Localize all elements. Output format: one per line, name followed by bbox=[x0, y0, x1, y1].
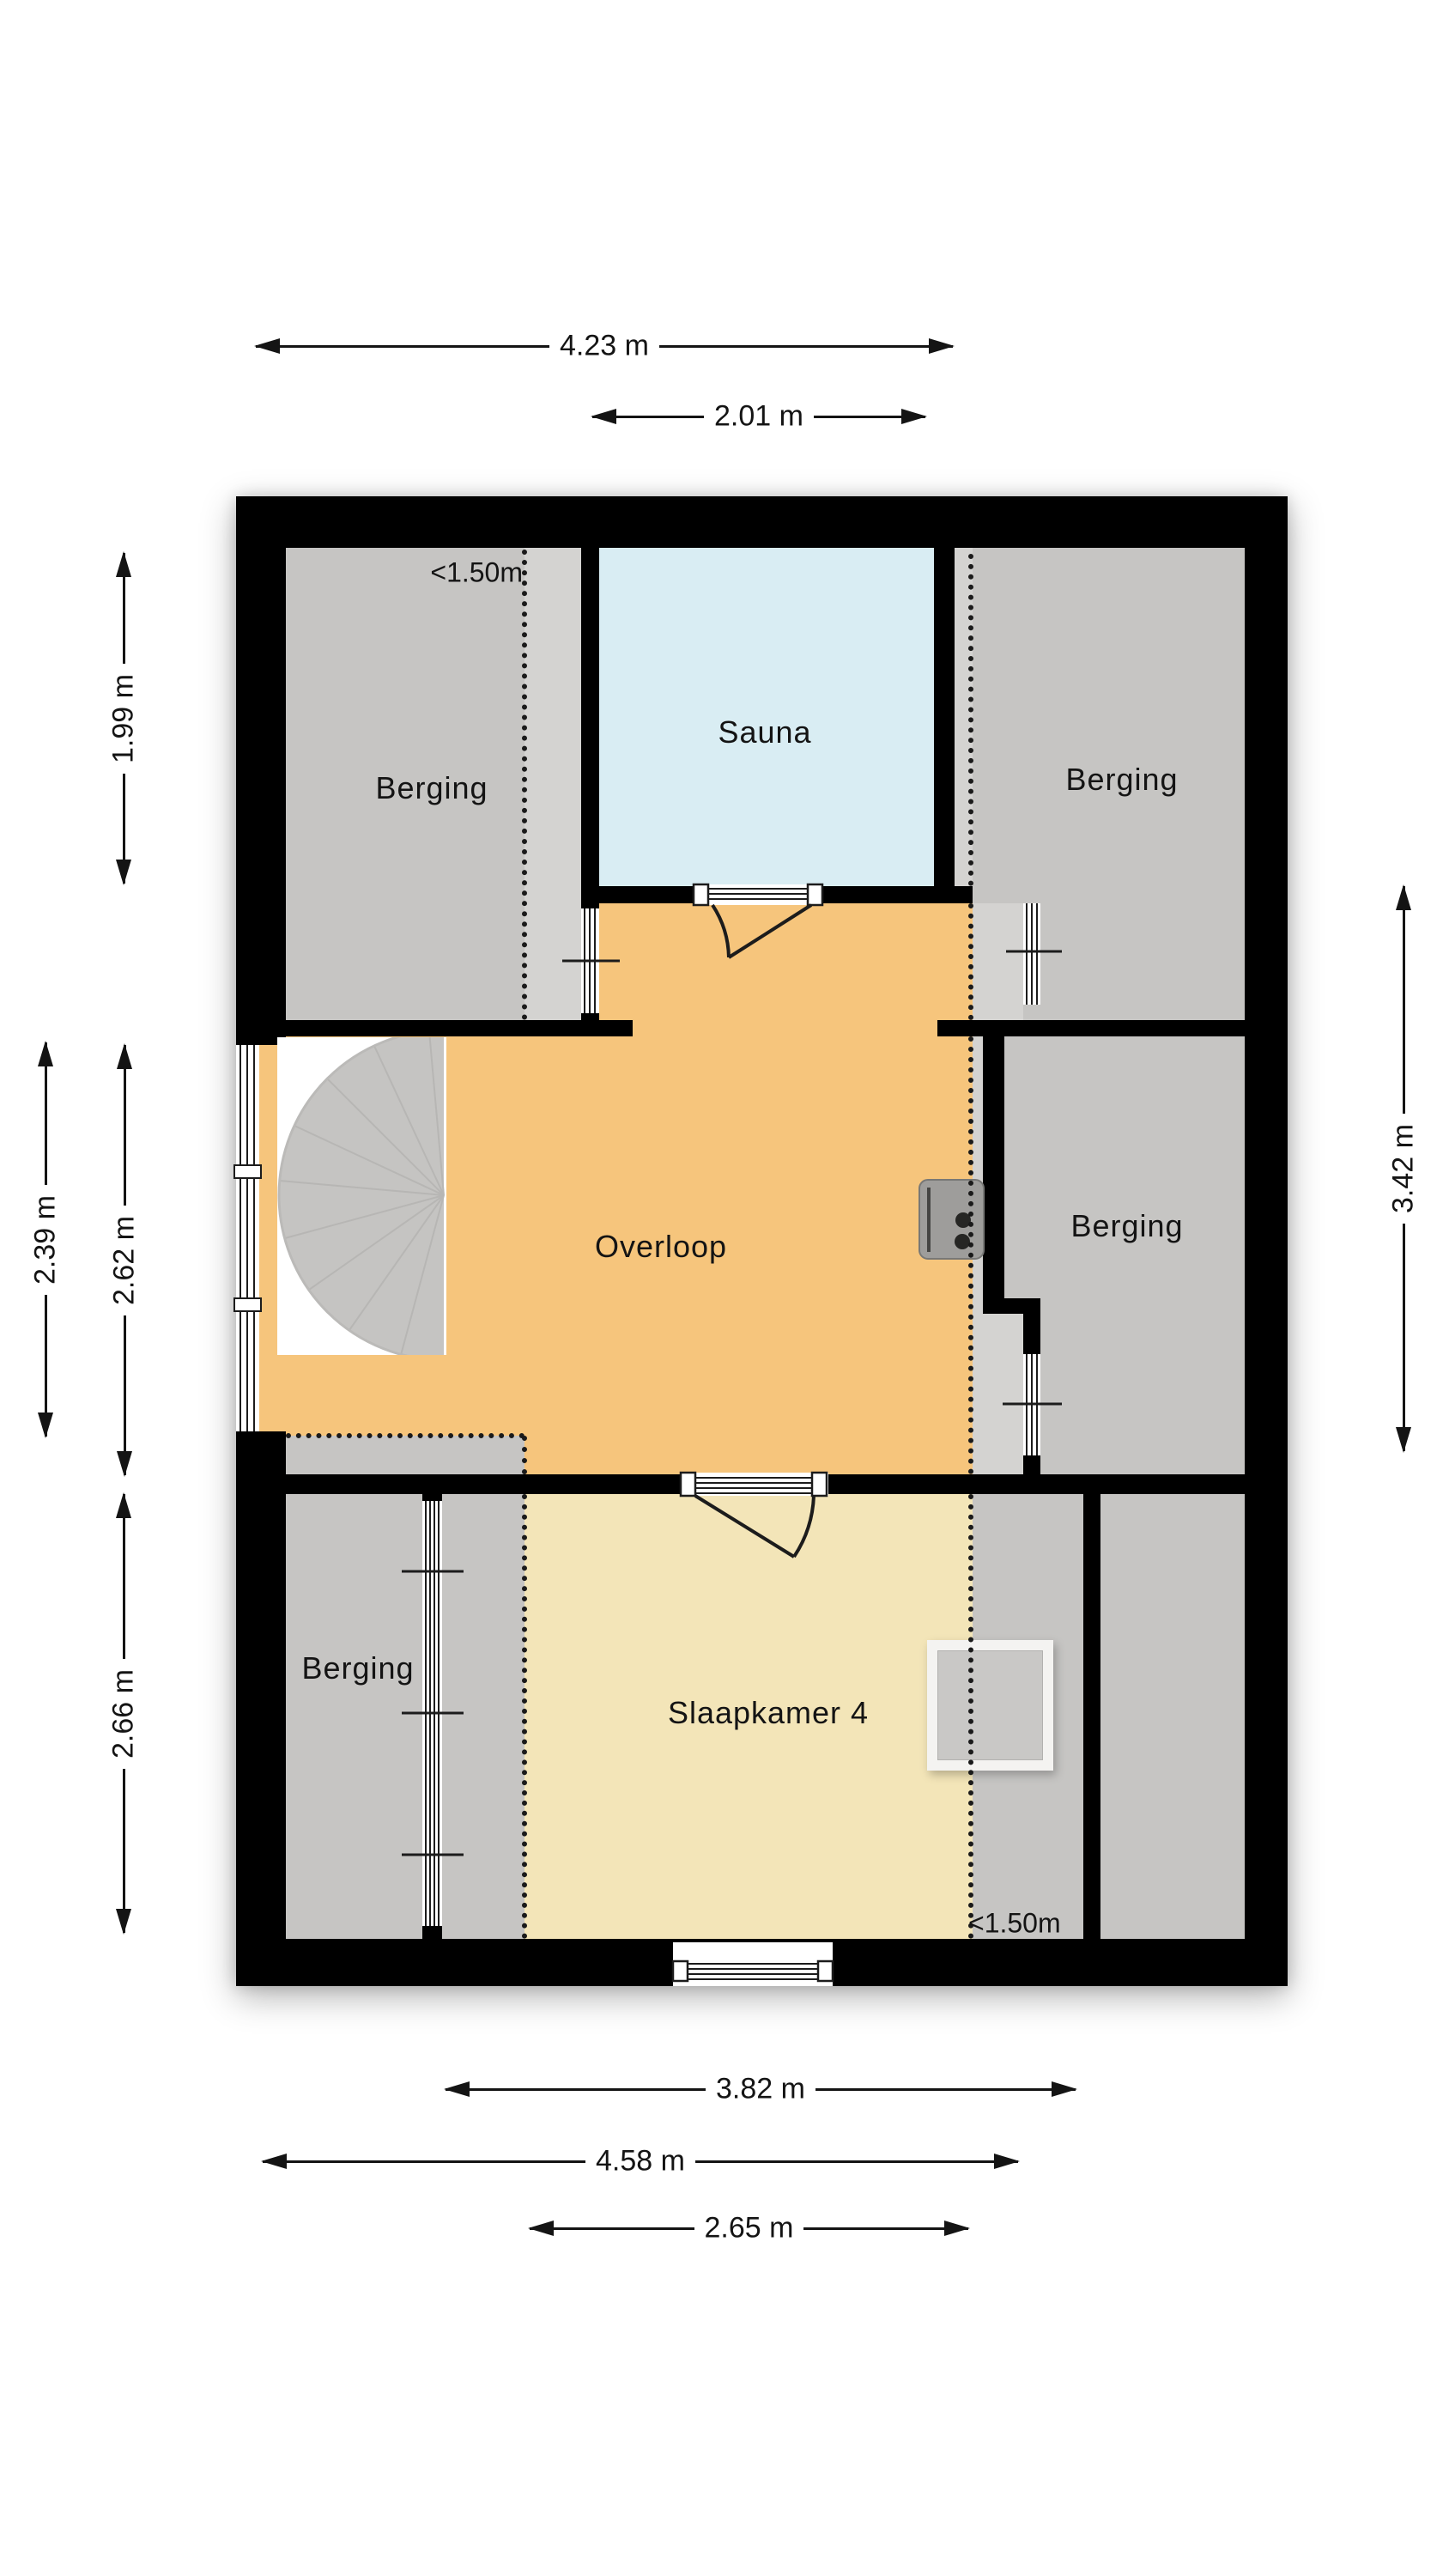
headroom-dotted-line bbox=[968, 554, 973, 886]
room-fill-berging-right-upper bbox=[1004, 1036, 1245, 1298]
arrowhead-down-icon bbox=[1396, 1427, 1411, 1453]
spiral-staircase-well bbox=[277, 1037, 446, 1355]
room-fill-overloop-stem bbox=[599, 903, 973, 1020]
arrowhead-down-icon bbox=[116, 860, 131, 885]
headroom-dotted-line bbox=[968, 1036, 973, 1474]
low-headroom-note-bottom: <1.50m bbox=[968, 1908, 1061, 1940]
arrowhead-left-icon bbox=[444, 2081, 470, 2097]
room-fill-low-strip-mid-lower bbox=[983, 1314, 1023, 1474]
room-label-berging-top-right: Berging bbox=[1065, 762, 1178, 798]
arrowhead-up-icon bbox=[116, 1492, 131, 1518]
arrowhead-left-icon bbox=[528, 2221, 554, 2236]
arrowhead-up-icon bbox=[117, 1043, 132, 1069]
room-fill-overloop-passage bbox=[633, 1020, 937, 1036]
skylight-glass bbox=[937, 1650, 1043, 1760]
room-label-overloop: Overloop bbox=[595, 1229, 727, 1265]
dimension-value: 4.58 m bbox=[585, 2143, 695, 2180]
low-headroom-note-top: <1.50m bbox=[430, 557, 523, 589]
arrowhead-right-icon bbox=[944, 2221, 970, 2236]
arrowhead-right-icon bbox=[1052, 2081, 1077, 2097]
skylight-icon bbox=[927, 1640, 1053, 1771]
headroom-dotted-line bbox=[286, 1433, 524, 1438]
arrowhead-right-icon bbox=[901, 409, 927, 424]
dimension-value: 3.82 m bbox=[706, 2071, 815, 2108]
room-fill-overloop-bottom bbox=[524, 1436, 973, 1474]
room-label-berging-bottom-left: Berging bbox=[301, 1650, 414, 1686]
room-label-berging-right: Berging bbox=[1070, 1208, 1183, 1244]
room-fill-berging-bottom-left bbox=[286, 1494, 422, 1939]
arrowhead-up-icon bbox=[1396, 884, 1411, 910]
arrowhead-left-icon bbox=[261, 2154, 287, 2169]
arrowhead-down-icon bbox=[117, 1451, 132, 1477]
dimension-value: 2.01 m bbox=[704, 398, 814, 435]
arrowhead-up-icon bbox=[38, 1041, 53, 1066]
arrowhead-left-icon bbox=[254, 338, 280, 354]
headroom-dotted-line bbox=[968, 1494, 973, 1939]
dimension-value: 3.42 m bbox=[1385, 1114, 1422, 1224]
dimension-value: 2.62 m bbox=[106, 1206, 143, 1315]
headroom-dotted-line bbox=[968, 903, 973, 1020]
room-fill-berging-top-right-lower bbox=[1040, 903, 1245, 1020]
arrowhead-left-icon bbox=[591, 409, 616, 424]
room-fill-overloop-low-corner bbox=[286, 1436, 524, 1474]
dimension-value: 2.39 m bbox=[27, 1185, 64, 1295]
headroom-dotted-line bbox=[522, 1436, 527, 1474]
arrowhead-down-icon bbox=[116, 1909, 131, 1935]
headroom-dotted-line bbox=[522, 550, 527, 1020]
room-label-sauna: Sauna bbox=[718, 714, 811, 750]
room-label-berging-top-left: Berging bbox=[375, 770, 488, 806]
room-fill-slaapkamer-low-left bbox=[442, 1494, 524, 1939]
dimension-value: 2.65 m bbox=[694, 2210, 804, 2247]
headroom-dotted-line bbox=[522, 1494, 527, 1939]
arrowhead-down-icon bbox=[38, 1413, 53, 1438]
room-fill-bottom-right-strip bbox=[1100, 1494, 1245, 1939]
dimension-value: 4.23 m bbox=[549, 328, 659, 365]
floorplan-page: Berging Sauna Berging Overloop Berging B… bbox=[0, 0, 1449, 2576]
heater-icon bbox=[919, 1179, 985, 1260]
arrowhead-up-icon bbox=[116, 551, 131, 577]
room-label-slaapkamer-4: Slaapkamer 4 bbox=[668, 1695, 869, 1731]
arrowhead-right-icon bbox=[994, 2154, 1020, 2169]
room-fill-berging-right-lower bbox=[1040, 1298, 1245, 1474]
room-fill-berging-top-left-high-strip bbox=[524, 548, 581, 1020]
arrowhead-right-icon bbox=[929, 338, 955, 354]
dimension-value: 1.99 m bbox=[106, 664, 142, 774]
room-fill-low-strip-upper-right bbox=[973, 903, 1023, 1020]
dimension-value: 2.66 m bbox=[106, 1659, 142, 1769]
